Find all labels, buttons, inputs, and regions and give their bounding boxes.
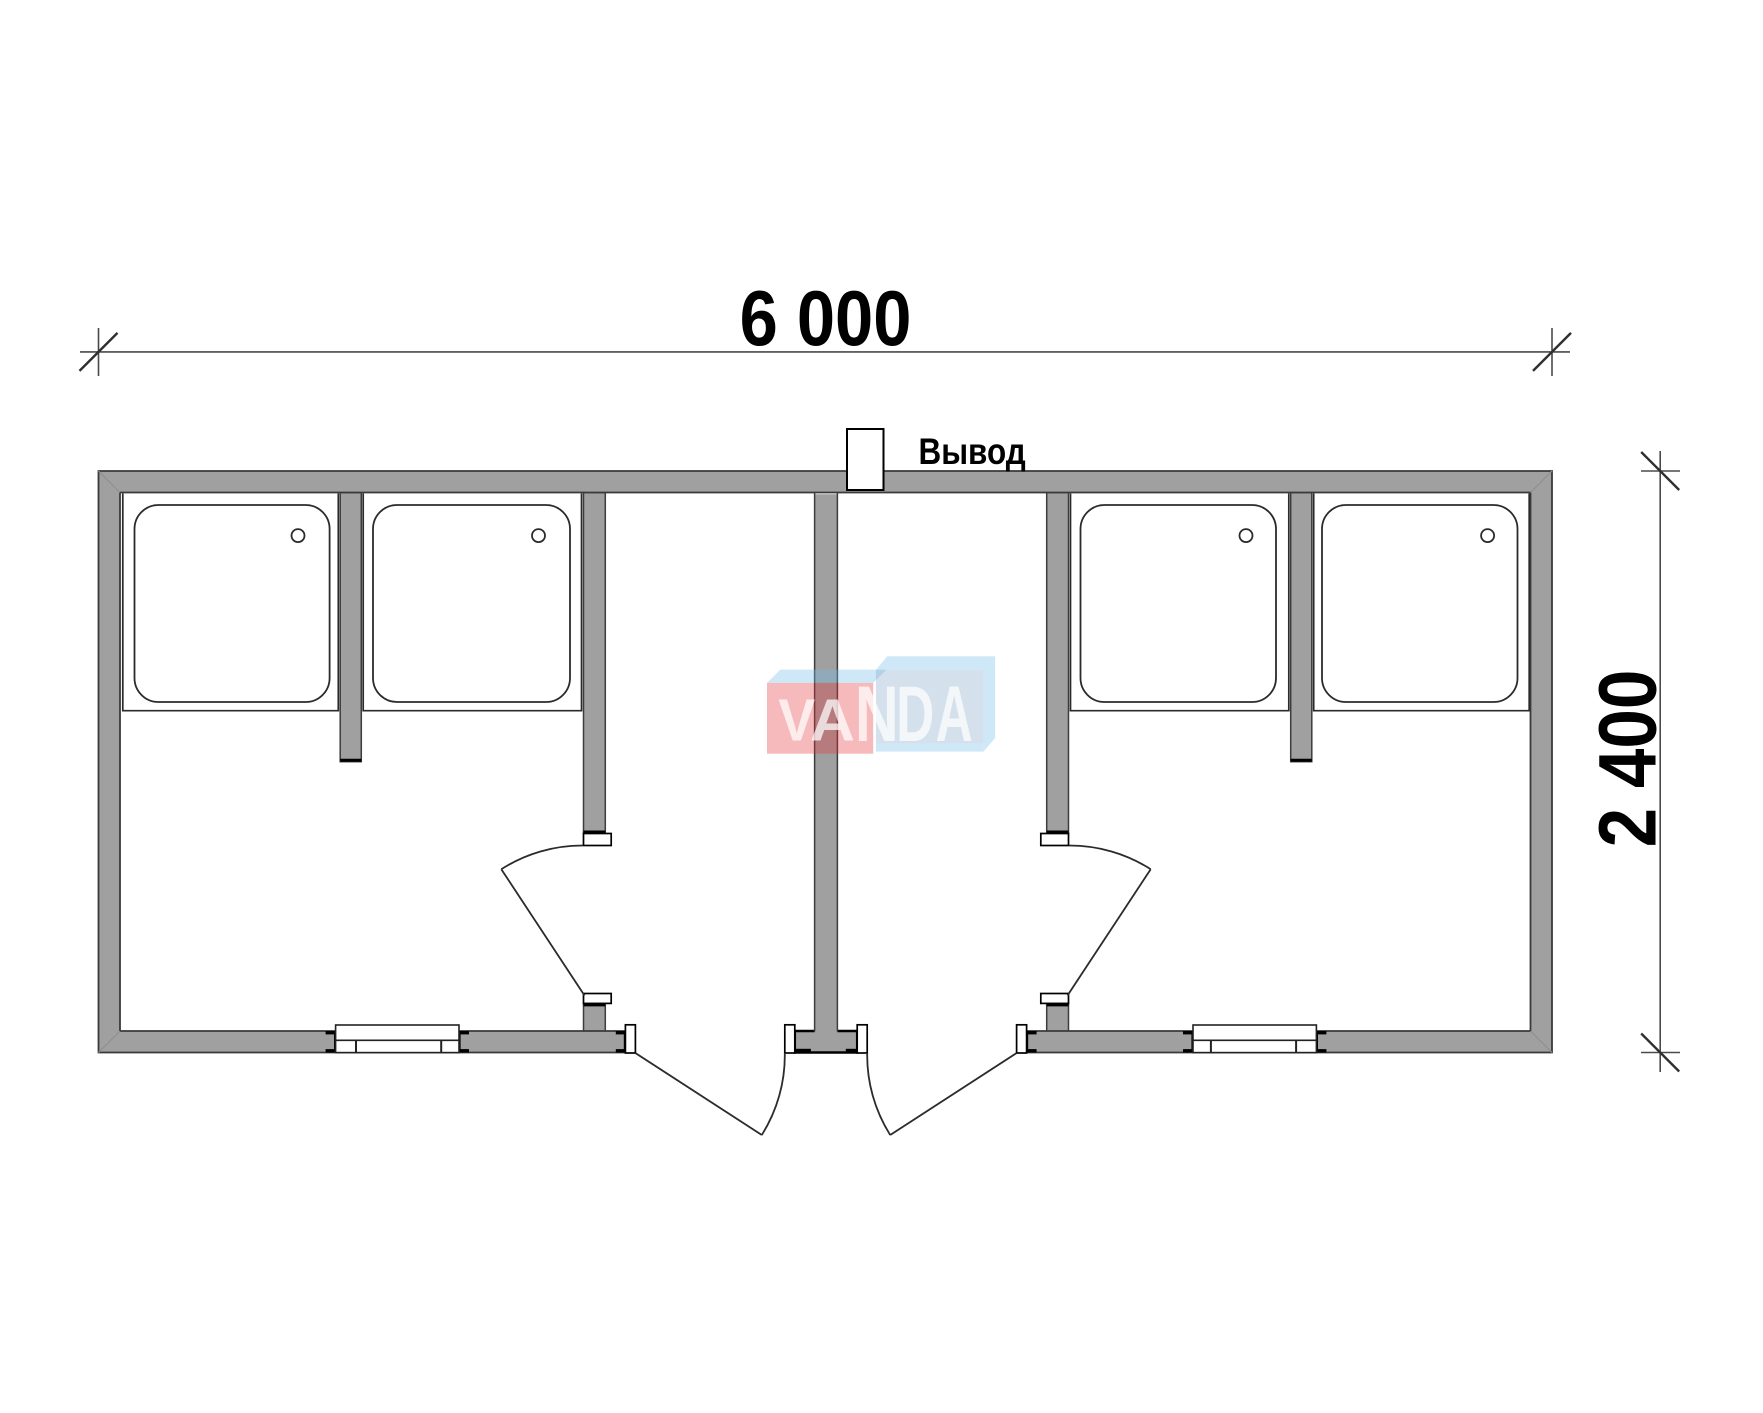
svg-text:A: A bbox=[936, 671, 973, 759]
svg-text:N: N bbox=[855, 669, 899, 758]
svg-text:A: A bbox=[810, 687, 855, 753]
svg-text:D: D bbox=[896, 671, 934, 759]
svg-text:2 400: 2 400 bbox=[1583, 670, 1674, 848]
svg-text:Вывод: Вывод bbox=[919, 432, 1026, 473]
svg-text:6 000: 6 000 bbox=[740, 275, 912, 362]
